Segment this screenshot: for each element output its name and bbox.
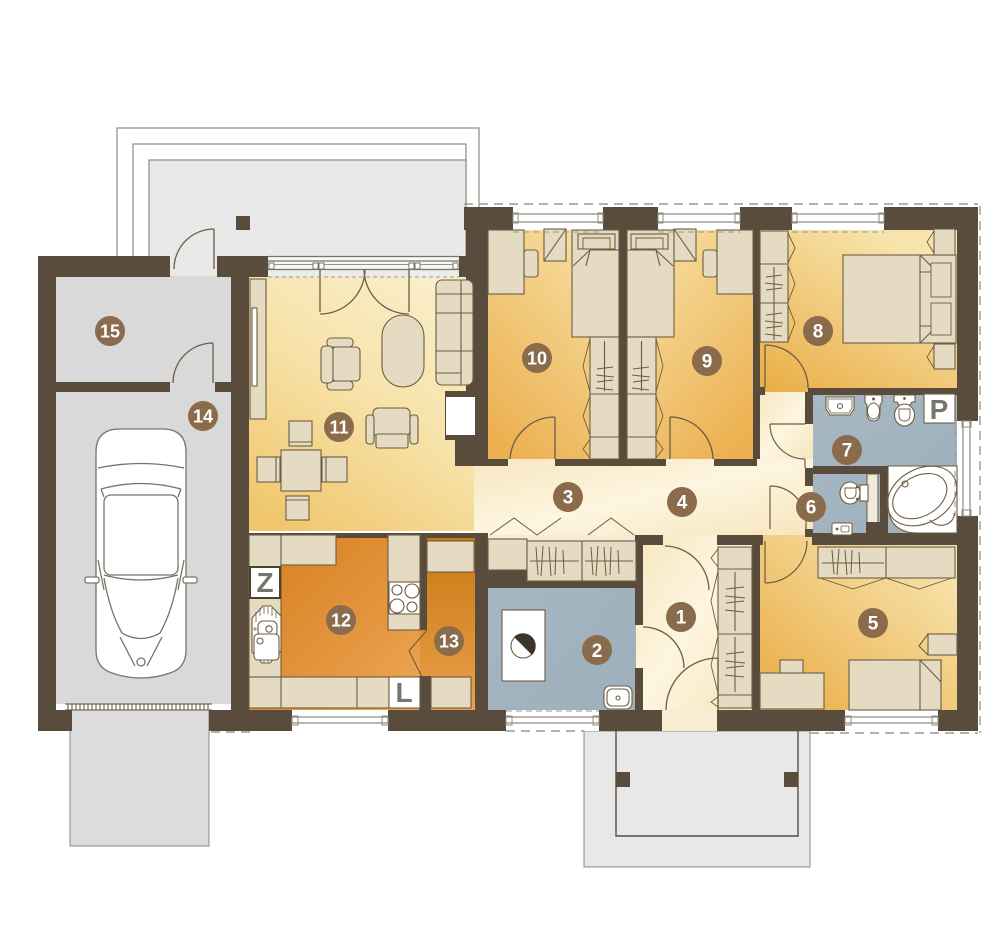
svg-text:Z: Z — [256, 567, 273, 598]
svg-text:4: 4 — [677, 493, 688, 514]
svg-text:9: 9 — [702, 352, 713, 373]
svg-text:10: 10 — [527, 349, 547, 369]
svg-text:5: 5 — [868, 614, 879, 635]
svg-text:3: 3 — [563, 488, 574, 509]
svg-text:8: 8 — [813, 322, 824, 343]
svg-text:7: 7 — [842, 441, 853, 462]
svg-text:12: 12 — [331, 611, 351, 631]
svg-text:15: 15 — [100, 322, 120, 342]
svg-text:14: 14 — [193, 407, 213, 427]
svg-text:L: L — [395, 677, 412, 708]
svg-text:6: 6 — [806, 498, 817, 519]
svg-text:P: P — [930, 394, 949, 425]
svg-text:13: 13 — [439, 632, 459, 652]
svg-text:2: 2 — [592, 641, 603, 662]
svg-text:1: 1 — [676, 608, 687, 629]
svg-text:11: 11 — [329, 418, 348, 438]
